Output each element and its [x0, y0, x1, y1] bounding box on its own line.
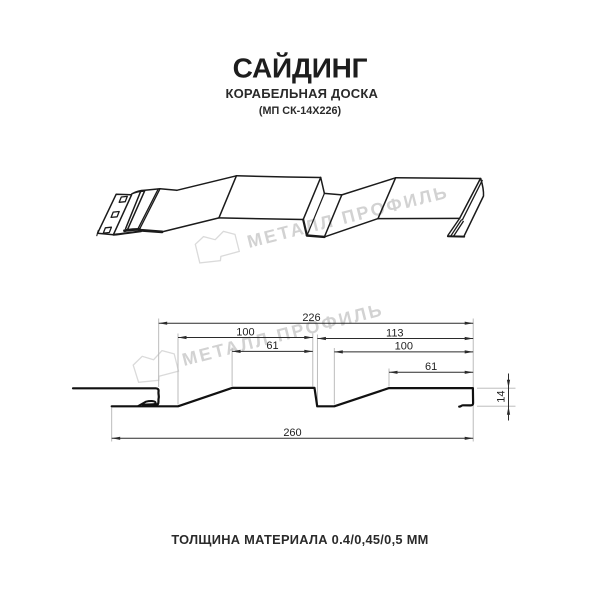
svg-text:14: 14 — [495, 390, 507, 402]
svg-text:226: 226 — [302, 312, 320, 324]
svg-text:113: 113 — [386, 327, 404, 339]
svg-text:(МП СК-14Х226): (МП СК-14Х226) — [259, 105, 342, 117]
svg-text:САЙДИНГ: САЙДИНГ — [233, 51, 368, 83]
svg-text:61: 61 — [266, 340, 278, 352]
svg-text:КОРАБЕЛЬНАЯ ДОСКА: КОРАБЕЛЬНАЯ ДОСКА — [225, 86, 378, 101]
svg-text:100: 100 — [395, 341, 413, 353]
svg-text:ТОЛЩИНА МАТЕРИАЛА 0.4/0,45/0,5: ТОЛЩИНА МАТЕРИАЛА 0.4/0,45/0,5 ММ — [171, 532, 428, 547]
svg-text:260: 260 — [283, 427, 301, 439]
svg-text:61: 61 — [425, 361, 437, 373]
svg-text:100: 100 — [236, 326, 254, 338]
